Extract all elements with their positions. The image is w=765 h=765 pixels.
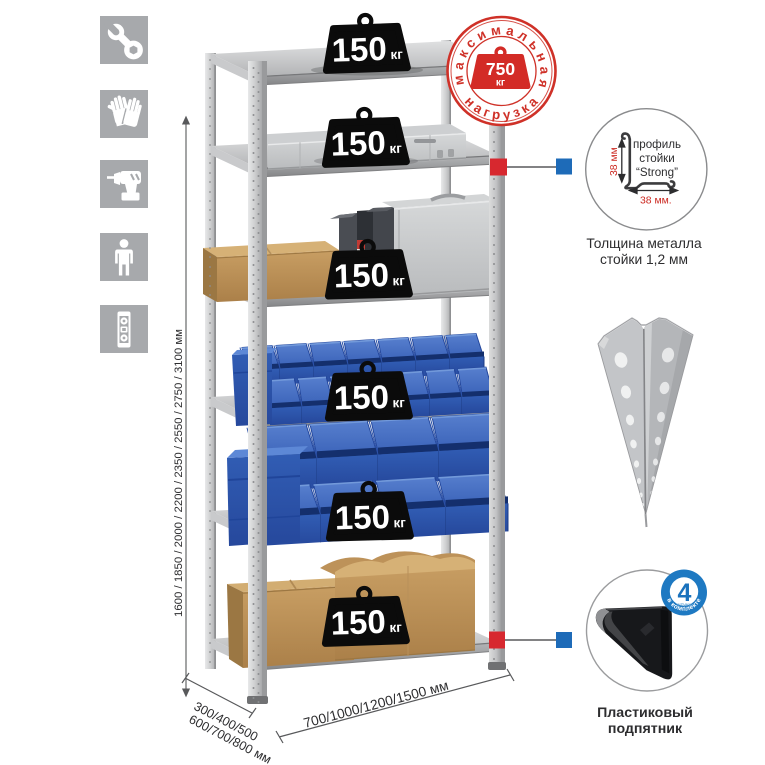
svg-text:стойки 1,2 мм: стойки 1,2 мм: [600, 252, 688, 267]
svg-text:150: 150: [333, 256, 389, 294]
svg-text:1600 / 1850 / 2000 / 2200 / 23: 1600 / 1850 / 2000 / 2200 / 2350 / 2550 …: [173, 329, 185, 617]
svg-text:38 мм: 38 мм: [609, 147, 620, 176]
svg-text:“Strong”: “Strong”: [636, 166, 678, 179]
svg-text:150: 150: [330, 124, 386, 163]
svg-text:стойки: стойки: [639, 152, 674, 165]
svg-text:150: 150: [334, 498, 390, 536]
svg-text:150: 150: [331, 30, 387, 69]
svg-text:Толщина металла: Толщина металла: [586, 236, 702, 251]
svg-text:кг: кг: [392, 395, 405, 410]
svg-text:Пластиковый: Пластиковый: [597, 705, 693, 721]
svg-text:750: 750: [486, 59, 515, 79]
svg-text:38 мм.: 38 мм.: [640, 196, 672, 207]
svg-text:150: 150: [333, 378, 389, 416]
svg-text:подпятник: подпятник: [608, 721, 683, 737]
svg-text:150: 150: [330, 603, 386, 642]
svg-text:кг: кг: [390, 47, 403, 62]
svg-text:профиль: профиль: [633, 138, 681, 151]
svg-text:кг: кг: [496, 78, 505, 89]
svg-text:700/1000/1200/1500 мм: 700/1000/1200/1500 мм: [302, 678, 450, 731]
svg-text:кг: кг: [389, 620, 402, 635]
svg-text:кг: кг: [392, 273, 405, 288]
svg-text:кг: кг: [393, 515, 406, 530]
svg-text:кг: кг: [389, 141, 402, 156]
